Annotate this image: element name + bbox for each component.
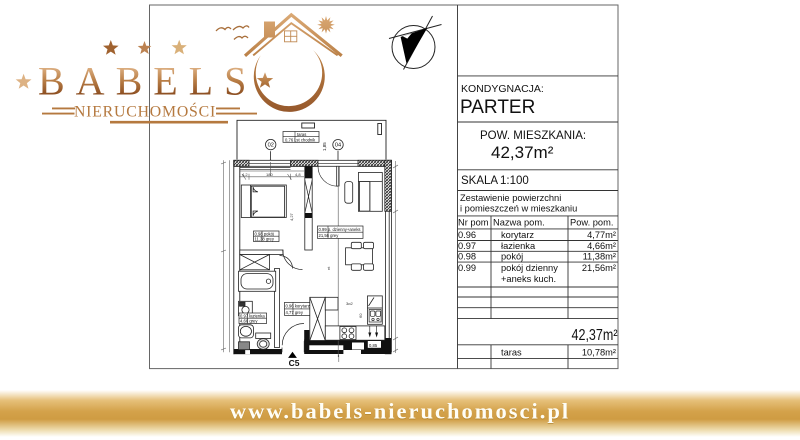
svg-text:3и2: 3и2 — [346, 301, 353, 306]
svg-text:+aneks kuch.: +aneks kuch. — [501, 274, 556, 284]
svg-text:нt: нt — [326, 266, 331, 270]
svg-text:4,66m²: 4,66m² — [587, 241, 616, 251]
svg-text:POW. MIESZKANIA:: POW. MIESZKANIA: — [480, 130, 586, 142]
svg-text:04: 04 — [335, 143, 341, 149]
svg-text:łazienka: łazienka — [501, 241, 536, 251]
svg-text:4,66 grey: 4,66 grey — [240, 319, 258, 324]
svg-text:21,56 grey: 21,56 grey — [319, 233, 340, 238]
svg-text:60: 60 — [358, 313, 363, 318]
svg-text:21,56m²: 21,56m² — [582, 263, 616, 273]
svg-text:180: 180 — [266, 172, 273, 177]
svg-text:4,8: 4,8 — [295, 172, 301, 177]
svg-text:taras: taras — [501, 348, 522, 358]
svg-text:11,38m²: 11,38m² — [583, 252, 616, 262]
svg-text:11,38 grey: 11,38 grey — [255, 237, 275, 242]
svg-text:0.99 p. dzienny+aneks: 0.99 p. dzienny+aneks — [319, 227, 361, 232]
svg-text:0.96: 0.96 — [458, 230, 476, 240]
svg-text:1,85: 1,85 — [322, 142, 327, 151]
svg-text:PARTER: PARTER — [460, 97, 535, 118]
svg-text:42,37m²: 42,37m² — [572, 327, 618, 344]
svg-text:0,85: 0,85 — [369, 343, 378, 348]
svg-text:Pow. pom.: Pow. pom. — [570, 218, 613, 228]
svg-text:4,77 grey: 4,77 grey — [286, 310, 304, 315]
svg-text:0.97: 0.97 — [458, 241, 476, 251]
svg-text:0.98: 0.98 — [458, 252, 476, 262]
svg-text:Zestawienie powierzchni: Zestawienie powierzchni — [460, 193, 561, 203]
svg-text:Nr pom: Nr pom — [458, 218, 489, 228]
svg-text:BABELS: BABELS — [38, 59, 257, 104]
svg-text:0.96 korytarz: 0.96 korytarz — [286, 304, 310, 309]
svg-text:4,2: 4,2 — [242, 172, 248, 177]
svg-text:02: 02 — [268, 143, 274, 149]
svg-text:0,76 l.st chodnik: 0,76 l.st chodnik — [285, 137, 316, 142]
svg-text:SKALA: SKALA — [461, 175, 498, 187]
svg-text:0.99: 0.99 — [458, 263, 476, 273]
svg-text:KONDYGNACJA:: KONDYGNACJA: — [461, 83, 544, 95]
svg-text:10,78m²: 10,78m² — [582, 348, 616, 358]
svg-text:C5: C5 — [289, 358, 300, 368]
svg-text:pokój: pokój — [501, 252, 523, 262]
svg-text:i pomieszczeń w mieszkaniu: i pomieszczeń w mieszkaniu — [460, 204, 577, 214]
svg-text:www.babels-nieruchomosci.pl: www.babels-nieruchomosci.pl — [230, 398, 570, 423]
svg-text:42,37m²: 42,37m² — [491, 143, 554, 162]
svg-text:taras: taras — [297, 132, 306, 137]
svg-text:NIERUCHOMOŚCI: NIERUCHOMOŚCI — [74, 102, 216, 121]
svg-text:pokój dzienny: pokój dzienny — [501, 263, 558, 273]
svg-text:4,27: 4,27 — [289, 212, 294, 221]
svg-text:1:100: 1:100 — [500, 175, 529, 187]
svg-text:4,77m²: 4,77m² — [587, 230, 616, 240]
svg-text:korytarz: korytarz — [501, 230, 534, 240]
svg-text:Nazwa pom.: Nazwa pom. — [493, 218, 545, 228]
